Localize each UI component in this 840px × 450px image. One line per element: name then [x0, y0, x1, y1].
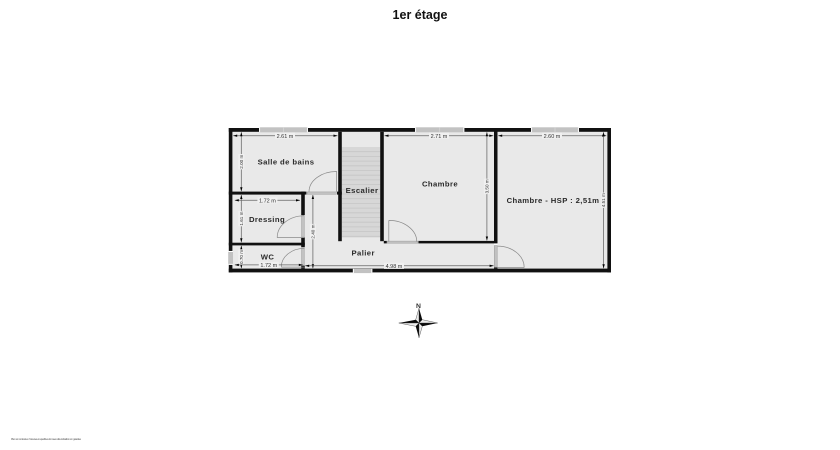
svg-text:1.61 m: 1.61 m: [239, 211, 244, 225]
svg-text:1er étage: 1er étage: [393, 8, 448, 22]
svg-text:2.40 m: 2.40 m: [311, 224, 316, 238]
svg-text:1.72 m: 1.72 m: [259, 198, 276, 204]
svg-text:Plan non contractuel - Mesures: Plan non contractuel - Mesures et superf…: [11, 438, 82, 441]
svg-text:2.60 m: 2.60 m: [544, 134, 561, 140]
svg-text:1.72 m: 1.72 m: [260, 263, 277, 269]
svg-text:Dressing: Dressing: [249, 215, 285, 224]
svg-text:2.71 m: 2.71 m: [431, 134, 448, 140]
svg-text:WC: WC: [261, 252, 275, 261]
svg-text:Escalier: Escalier: [346, 186, 379, 195]
svg-text:N: N: [416, 303, 421, 310]
svg-text:Chambre: Chambre: [422, 179, 458, 188]
svg-text:4.98 m: 4.98 m: [386, 264, 403, 270]
svg-text:Palier: Palier: [352, 249, 375, 258]
svg-text:2.61 m: 2.61 m: [277, 134, 294, 140]
svg-text:0.70 m: 0.70 m: [239, 250, 244, 264]
svg-text:Chambre - HSP : 2,51m: Chambre - HSP : 2,51m: [507, 196, 600, 205]
svg-text:Salle de bains: Salle de bains: [258, 157, 315, 166]
svg-text:3.50 m: 3.50 m: [485, 179, 490, 193]
svg-text:4.51 m: 4.51 m: [601, 193, 606, 207]
svg-text:2.00 m: 2.00 m: [239, 155, 244, 169]
